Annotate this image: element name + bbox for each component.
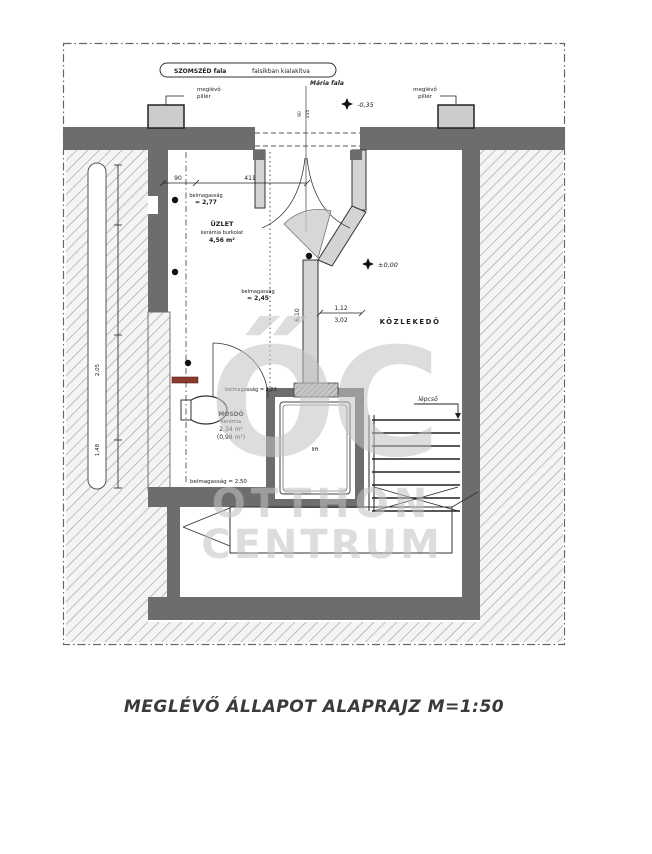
watermark-centrum: CENTRUM — [201, 522, 443, 568]
watermark-logo: ŐC — [209, 315, 435, 491]
level-star-entrance — [341, 98, 353, 110]
pillar-right — [438, 105, 474, 128]
hatch-left — [66, 150, 148, 642]
hatch-left-step — [148, 312, 170, 490]
level-entrance: -0,35 — [357, 101, 374, 109]
dim-side-a: 2,05 — [95, 363, 101, 376]
pillar-right-label-1: meglévő — [413, 86, 437, 93]
dimension-capsule — [88, 163, 106, 489]
uzlet-height-word: belmagasság — [189, 192, 222, 199]
dim-open-w: 90 — [297, 111, 303, 117]
pillar-left-label-1: meglévő — [197, 86, 221, 93]
uzlet-height-value: = 2,77 — [195, 199, 217, 206]
wall-bottomroom-left — [167, 507, 180, 597]
mid-height-word: belmagasság — [241, 288, 274, 295]
uzlet-name: ÜZLET — [210, 219, 234, 228]
wall-top-left — [63, 127, 255, 150]
wall-dot-3 — [185, 360, 191, 366]
hatch-bottom — [148, 622, 480, 642]
pillar-right-label-2: pillér — [418, 93, 432, 100]
stairs-leader-arrow — [455, 413, 461, 419]
hatch-right — [480, 150, 563, 642]
watermark-otthon: OTTHON — [212, 481, 432, 527]
dim-side-b: 1,48 — [95, 443, 101, 456]
level-star-corridor — [362, 258, 374, 270]
drawing-caption: MEGLÉVŐ ÁLLAPOT ALAPRAJZ M=1:50 — [124, 695, 504, 717]
wall-dot-1 — [172, 197, 178, 203]
wall-niche — [148, 196, 158, 214]
wall-left-upper — [148, 150, 168, 312]
uzlet-area: 4,56 m² — [209, 237, 235, 244]
watermark: ŐC OTTHON CENTRUM — [201, 315, 443, 568]
pillars — [148, 96, 474, 128]
wall-dot-2 — [172, 269, 178, 275]
jamb-left — [253, 150, 265, 160]
pillar-left-label-2: pillér — [197, 93, 211, 100]
dim-112: 1,12 — [334, 305, 348, 312]
floorplan-page: SZOMSZÉD fala falsíkban kialakítva Mária… — [0, 0, 652, 854]
floorplan-svg: SZOMSZÉD fala falsíkban kialakítva Mária… — [0, 0, 652, 854]
maria-label: Mária fala — [310, 80, 344, 87]
dim-90: 90 — [174, 175, 182, 182]
dim-411: 411 — [244, 175, 256, 182]
pillar-left — [148, 105, 184, 128]
banner-left-label: SZOMSZÉD fala — [174, 67, 226, 75]
radiator — [172, 377, 198, 383]
mid-height-value: = 2,45 — [247, 295, 269, 302]
wall-dot-4 — [306, 253, 312, 259]
level-corridor: ±0,00 — [378, 261, 398, 269]
banner-right-label: falsíkban kialakítva — [252, 68, 310, 75]
uzlet-finish: kerámia burkolat — [201, 229, 243, 236]
wall-bottom — [148, 597, 480, 620]
lintel-dashes — [255, 133, 360, 146]
wall-top-right — [360, 127, 565, 150]
dim-open-h: 215 — [305, 110, 311, 119]
jamb-right — [350, 150, 362, 160]
wall-right — [462, 150, 480, 620]
pillar-left-leader — [166, 96, 184, 105]
pillar-right-leader — [440, 96, 456, 105]
